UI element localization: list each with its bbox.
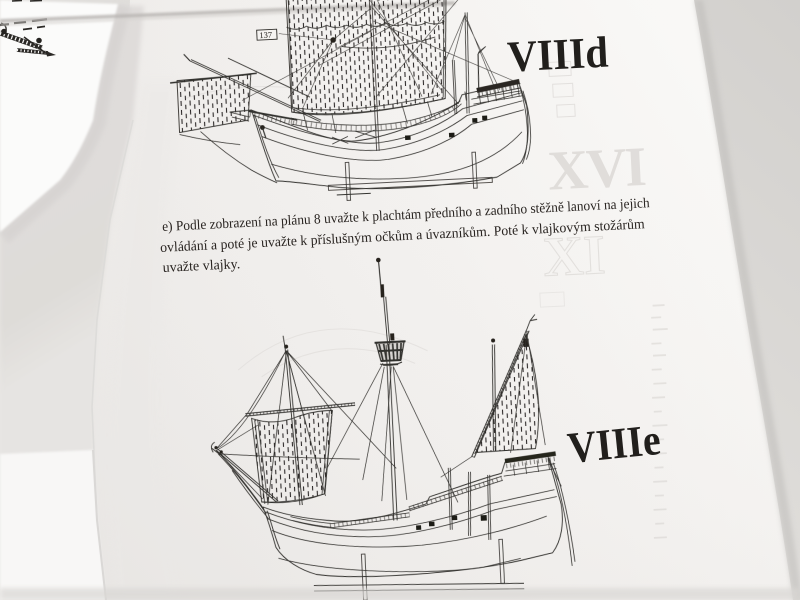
svg-text:XVI: XVI [546, 136, 646, 203]
svg-text:VIIIe: VIIIe [565, 415, 662, 473]
svg-text:VIIId: VIIId [506, 28, 609, 82]
svg-text:137: 137 [259, 30, 272, 41]
